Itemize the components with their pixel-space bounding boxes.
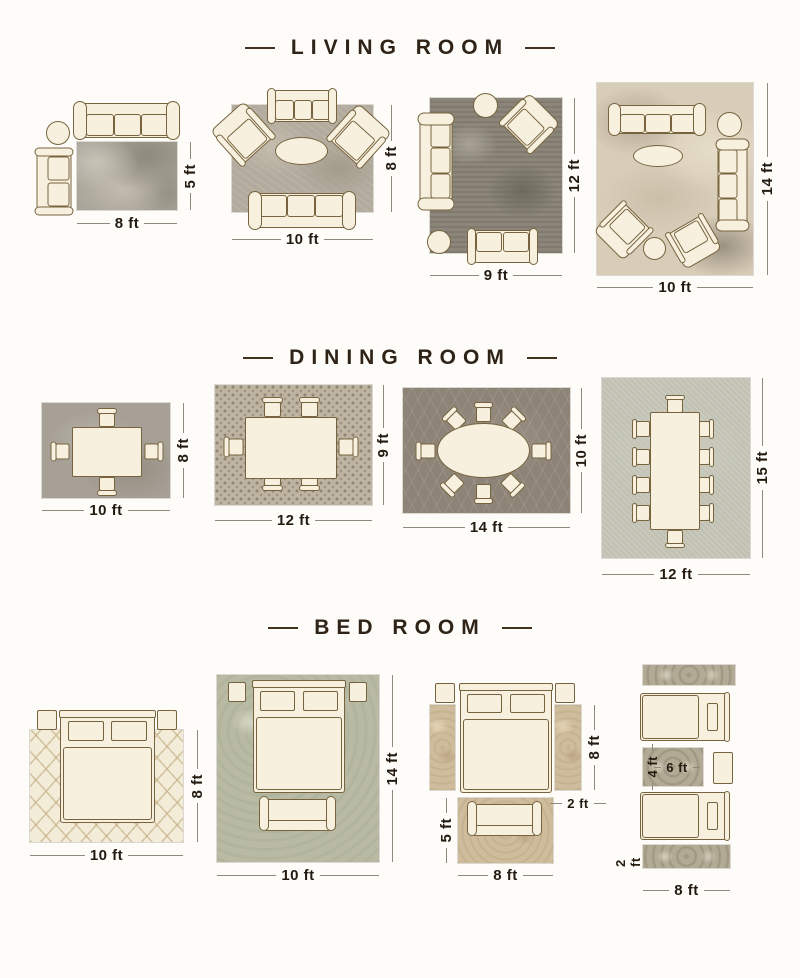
bed (60, 710, 155, 823)
title-dash (245, 47, 275, 49)
section-title-living-room: LIVING ROOM (0, 36, 800, 60)
dimension-label: 14 ft (759, 162, 776, 195)
height-dimension: 12 ft (566, 98, 582, 253)
width-dimension: 12 ft (215, 512, 372, 529)
dining-table (650, 412, 700, 530)
dimension-label: 14 ft (470, 519, 503, 536)
dimension-label: 10 ft (286, 231, 319, 248)
dining-chair (474, 484, 493, 504)
dimension-label: 8 ft (586, 735, 603, 760)
width-dimension: 8 ft (77, 215, 177, 232)
dining-chair (51, 442, 70, 462)
dining-room-layout-2: 9 ft 12 ft (215, 385, 400, 560)
dining-chair (145, 442, 164, 462)
dimension-label: 10 ft (90, 847, 123, 864)
dining-chair (632, 475, 650, 495)
dimension-label: 15 ft (754, 451, 771, 484)
dining-chair (532, 442, 552, 461)
dimension-label: 12 ft (659, 566, 692, 583)
width-dimension: 8 ft (643, 882, 730, 899)
dimension-label: 12 ft (277, 512, 310, 529)
section-title-text: BED ROOM (314, 616, 486, 640)
width-dimension: 10 ft (42, 502, 170, 519)
dimension-label: 10 ft (658, 279, 691, 296)
sofa (718, 139, 748, 232)
dining-chair (665, 530, 685, 548)
sofa (248, 193, 356, 228)
round-side-table (46, 121, 70, 145)
dining-table (245, 417, 337, 479)
twin-bed (640, 693, 730, 741)
bed (253, 680, 345, 793)
sofa (73, 103, 180, 138)
bed-room-layout-2: 14 ft 10 ft (215, 660, 410, 905)
width-dimension: 12 ft (602, 566, 750, 583)
dining-room-layout-4: 15 ft 12 ft (595, 375, 790, 605)
dimension-label: 10 ft (89, 502, 122, 519)
dimension-label: 2 ft (613, 847, 643, 867)
dimension-label: 8 ft (189, 774, 206, 799)
nightstand (37, 710, 57, 730)
round-side-table (427, 230, 451, 254)
rug (77, 142, 177, 210)
dining-room-layout-1: 8 ft 10 ft (30, 395, 210, 545)
section-title-dining-room: DINING ROOM (0, 346, 800, 370)
dining-chair (224, 437, 244, 458)
oval-dining-table (437, 423, 530, 478)
height-dimension: 10 ft (573, 388, 589, 513)
section-title-text: LIVING ROOM (291, 36, 509, 60)
living-room-layout-3: 12 ft 9 ft (410, 85, 595, 290)
width-dimension: 14 ft (403, 519, 570, 536)
title-dash (502, 627, 532, 629)
rug-size-guide-infographic: LIVING ROOM 5 ft 8 ft 8 ft 10 ft (0, 0, 800, 978)
nightstand (228, 682, 246, 702)
dimension-label: 5 ft (182, 164, 199, 189)
mid-rug-width-dimension: 6 ft (654, 760, 700, 775)
bed (460, 683, 552, 793)
dining-chair (665, 395, 685, 413)
height-dimension: 8 ft (189, 730, 205, 842)
section-title-bed-room: BED ROOM (0, 616, 800, 640)
dimension-label: 9 ft (375, 433, 392, 458)
round-side-table (643, 237, 666, 260)
dining-chair (339, 437, 359, 458)
dining-chair (632, 419, 650, 439)
nightstand (713, 752, 733, 784)
height-dimension: 5 ft (182, 142, 198, 210)
bed-room-layout-3: 8 ft 2 ft 5 ft 8 ft (420, 660, 620, 890)
width-dimension: 10 ft (30, 847, 183, 864)
title-dash (527, 357, 557, 359)
dimension-label: 10 ft (281, 867, 314, 884)
sofa (608, 105, 706, 134)
dimension-label: 8 ft (383, 146, 400, 171)
dimension-label: 6 ft (666, 760, 688, 775)
height-dimension: 15 ft (754, 378, 770, 558)
bed-room-layout-1: 8 ft 10 ft (15, 695, 215, 880)
dimension-label: 5 ft (438, 818, 455, 843)
dimension-label: 8 ft (175, 438, 192, 463)
front-rug-height-dimension: 5 ft (438, 798, 454, 863)
title-dash (525, 47, 555, 49)
width-dimension: 10 ft (597, 279, 753, 296)
dimension-label: 8 ft (493, 867, 518, 884)
width-dimension: 8 ft (458, 867, 553, 884)
dining-chair (474, 402, 493, 422)
nightstand (435, 683, 455, 703)
dining-chair (632, 447, 650, 467)
title-dash (268, 627, 298, 629)
runner-rug (643, 665, 735, 685)
bench (260, 798, 335, 831)
nightstand (157, 710, 177, 730)
runner-height-dimension: 2 ft (620, 842, 636, 872)
height-dimension: 8 ft (383, 105, 399, 212)
dimension-label: 10 ft (573, 434, 590, 467)
dining-chair (97, 477, 117, 496)
dining-chair (262, 397, 283, 417)
living-room-layout-2: 8 ft 10 ft (215, 85, 400, 250)
sofa (267, 90, 337, 122)
dimension-label: 8 ft (115, 215, 140, 232)
section-title-text: DINING ROOM (289, 346, 511, 370)
height-dimension: 9 ft (375, 385, 391, 505)
oval-coffee-table (275, 137, 328, 165)
dining-chair (97, 408, 117, 427)
dimension-label: 8 ft (674, 882, 699, 899)
twin-bed (640, 792, 730, 840)
runner-rug (555, 705, 581, 790)
nightstand (555, 683, 575, 703)
width-dimension: 10 ft (217, 867, 379, 884)
runner-rug (430, 705, 455, 790)
runner-rug (643, 845, 730, 868)
round-side-table (717, 112, 742, 137)
loveseat (467, 230, 538, 263)
runner-height-dimension: 8 ft (586, 705, 602, 790)
dining-chair (299, 397, 320, 417)
dimension-label: 9 ft (484, 267, 509, 284)
dining-table (72, 427, 142, 477)
dining-chair (632, 503, 650, 523)
height-dimension: 14 ft (759, 83, 775, 275)
dimension-label: 12 ft (566, 159, 583, 192)
nightstand (349, 682, 367, 702)
width-dimension: 10 ft (232, 231, 373, 248)
height-dimension: 8 ft (175, 403, 191, 498)
living-room-layout-1: 5 ft 8 ft (30, 95, 210, 245)
loveseat (37, 148, 72, 216)
dimension-label: 14 ft (384, 752, 401, 785)
round-side-table (473, 93, 498, 118)
bed-room-layout-4: 4 ft 6 ft 2 ft 8 ft (620, 658, 800, 908)
dining-room-layout-3: 10 ft 14 ft (400, 385, 590, 555)
title-dash (243, 357, 273, 359)
runner-width-dimension: 2 ft (550, 796, 606, 811)
height-dimension: 14 ft (384, 675, 400, 862)
living-room-layout-4: 14 ft 10 ft (595, 75, 790, 310)
dimension-label: 2 ft (567, 796, 589, 811)
width-dimension: 9 ft (430, 267, 562, 284)
sofa (420, 113, 453, 211)
oval-coffee-table (633, 145, 683, 167)
bench (468, 803, 541, 836)
dining-chair (416, 442, 436, 461)
